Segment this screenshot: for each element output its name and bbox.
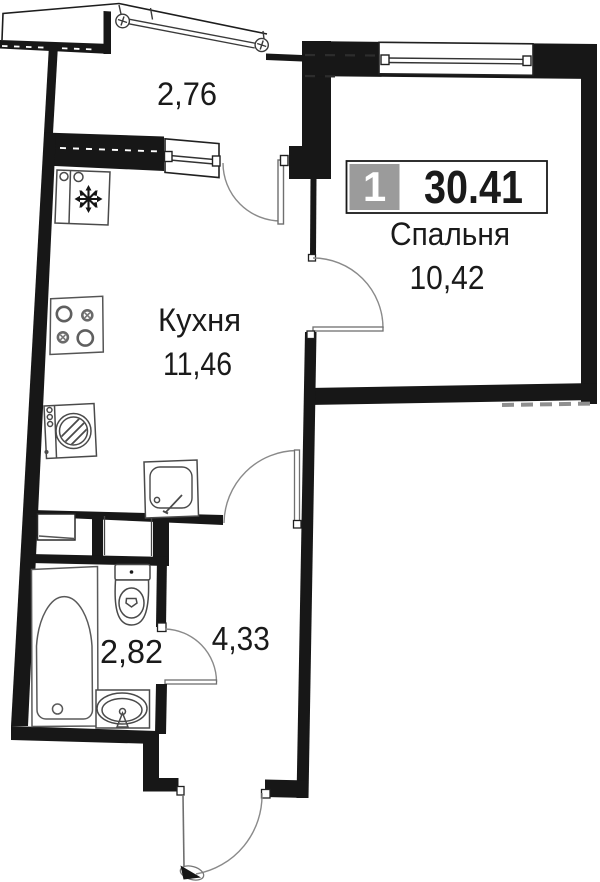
svg-text:30.41: 30.41 (424, 161, 523, 213)
svg-text:10,42: 10,42 (410, 259, 485, 296)
svg-text:Кухня: Кухня (158, 302, 241, 338)
svg-text:Спальня: Спальня (390, 216, 510, 252)
svg-text:4,33: 4,33 (212, 620, 270, 657)
svg-text:1: 1 (363, 163, 386, 210)
svg-text:2,82: 2,82 (100, 633, 163, 670)
svg-text:11,46: 11,46 (163, 346, 232, 382)
svg-text:2,76: 2,76 (157, 76, 217, 112)
